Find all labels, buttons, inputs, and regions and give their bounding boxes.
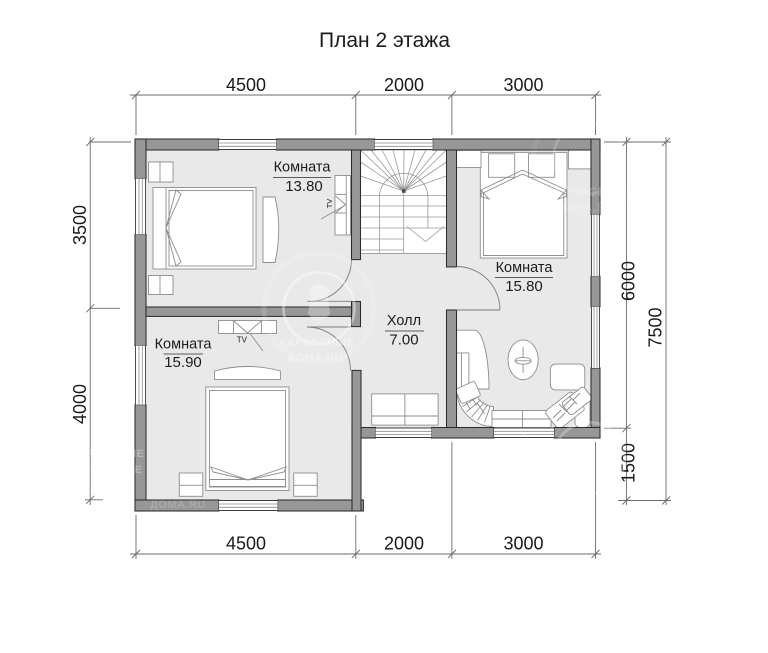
svg-text:4500: 4500 <box>226 534 266 554</box>
svg-text:4500: 4500 <box>226 75 266 95</box>
svg-text:Холл: Холл <box>387 313 421 329</box>
svg-text:15.90: 15.90 <box>164 354 202 371</box>
svg-text:Комната: Комната <box>496 260 554 276</box>
svg-text:TV: TV <box>237 336 248 345</box>
svg-text:3000: 3000 <box>503 75 543 95</box>
svg-text:7.00: 7.00 <box>389 332 418 349</box>
svg-text:КАРКАСНЫЕ: КАРКАСНЫЕ <box>68 464 143 476</box>
svg-text:ДОМА.RU: ДОМА.RU <box>287 352 343 364</box>
svg-text:Комната: Комната <box>155 337 213 353</box>
svg-text:7500: 7500 <box>646 307 666 347</box>
svg-text:1500: 1500 <box>619 443 639 483</box>
svg-text:КАРКАСНЫЕ: КАРКАСНЫЕ <box>70 448 145 460</box>
svg-text:2000: 2000 <box>384 534 424 554</box>
svg-text:13.80: 13.80 <box>285 178 323 195</box>
svg-text:КАРКАСНЫЕ: КАРКАСНЫЕ <box>280 337 355 349</box>
svg-text:КАРКАСНЫЕ: КАРКАСНЫЕ <box>546 187 629 199</box>
svg-text:TV: TV <box>325 199 334 209</box>
svg-text:15.80: 15.80 <box>505 278 543 295</box>
svg-text:2000: 2000 <box>384 75 424 95</box>
svg-text:План 2 этажа: План 2 этажа <box>319 29 450 52</box>
svg-text:ДОМА.RU: ДОМА.RU <box>554 202 616 214</box>
svg-text:Комната: Комната <box>274 160 332 176</box>
svg-text:4000: 4000 <box>70 384 90 424</box>
svg-text:3500: 3500 <box>70 205 90 245</box>
svg-text:3000: 3000 <box>503 534 543 554</box>
svg-text:ДОМА.RU: ДОМА.RU <box>150 499 206 511</box>
svg-text:6000: 6000 <box>619 261 639 301</box>
